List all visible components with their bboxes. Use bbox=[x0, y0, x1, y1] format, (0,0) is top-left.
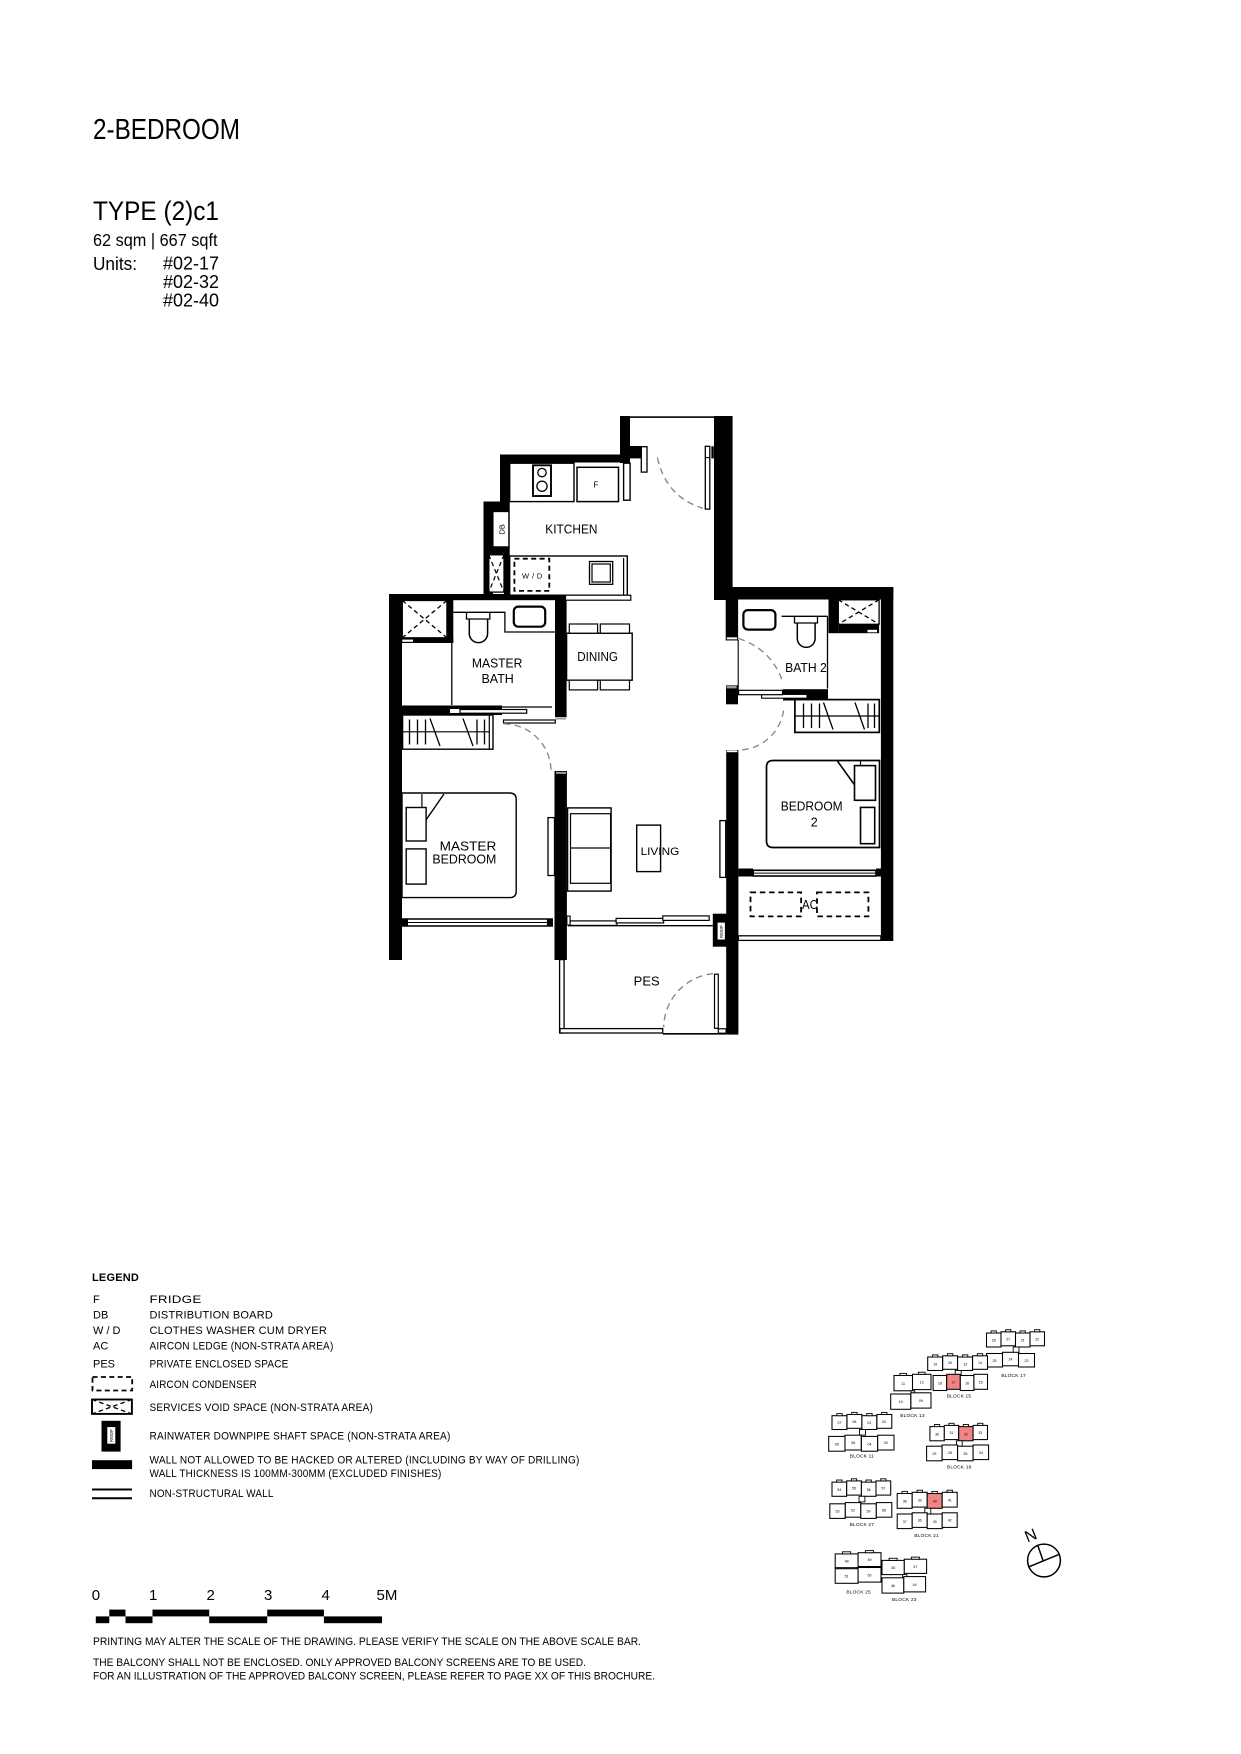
svg-text:1: 1 bbox=[149, 1587, 157, 1604]
svg-text:57: 57 bbox=[881, 1487, 885, 1491]
svg-text:22: 22 bbox=[1035, 1337, 1039, 1341]
svg-text:BLOCK 23: BLOCK 23 bbox=[892, 1597, 917, 1603]
svg-text:F: F bbox=[93, 1294, 100, 1306]
svg-text:17: 17 bbox=[952, 1380, 956, 1384]
svg-text:BEDROOM: BEDROOM bbox=[781, 800, 843, 814]
svg-text:0: 0 bbox=[92, 1587, 100, 1604]
svg-text:BATH 2: BATH 2 bbox=[785, 661, 827, 675]
svg-text:BLOCK 19: BLOCK 19 bbox=[947, 1464, 972, 1470]
svg-text:W / D: W / D bbox=[93, 1325, 121, 1337]
svg-text:RAINWATER DOWNPIPE SHAFT SPACE: RAINWATER DOWNPIPE SHAFT SPACE (NON-STRA… bbox=[150, 1431, 451, 1443]
svg-text:LIVING: LIVING bbox=[641, 846, 680, 858]
svg-text:41: 41 bbox=[948, 1498, 952, 1502]
svg-text:39: 39 bbox=[918, 1498, 922, 1502]
svg-text:08: 08 bbox=[852, 1420, 856, 1424]
svg-text:37: 37 bbox=[903, 1520, 907, 1524]
svg-text:4: 4 bbox=[322, 1587, 330, 1604]
svg-text:59: 59 bbox=[867, 1510, 871, 1514]
svg-text:PES: PES bbox=[93, 1359, 115, 1371]
svg-text:46: 46 bbox=[891, 1584, 895, 1588]
svg-text:53: 53 bbox=[836, 1510, 840, 1514]
svg-text:21: 21 bbox=[1021, 1339, 1025, 1343]
svg-text:43: 43 bbox=[933, 1520, 937, 1524]
svg-text:04: 04 bbox=[868, 1442, 872, 1446]
svg-text:29: 29 bbox=[932, 1452, 936, 1456]
svg-text:#02-32: #02-32 bbox=[163, 272, 219, 292]
svg-text:07: 07 bbox=[838, 1421, 842, 1425]
svg-text:AC: AC bbox=[802, 898, 818, 912]
svg-text:24: 24 bbox=[1009, 1358, 1013, 1362]
svg-text:AIRCON LEDGE (NON-STRATA AREA): AIRCON LEDGE (NON-STRATA AREA) bbox=[150, 1341, 334, 1353]
svg-text:LEGEND: LEGEND bbox=[92, 1272, 139, 1284]
svg-text:PRINTING MAY ALTER THE SCALE O: PRINTING MAY ALTER THE SCALE OF THE DRAW… bbox=[93, 1636, 641, 1648]
svg-text:2-BEDROOM: 2-BEDROOM bbox=[93, 114, 240, 146]
svg-text:56: 56 bbox=[867, 1488, 871, 1492]
svg-text:PES: PES bbox=[634, 975, 660, 989]
svg-text:48: 48 bbox=[845, 1559, 849, 1563]
svg-text:W / D: W / D bbox=[522, 572, 543, 581]
svg-text:42: 42 bbox=[948, 1519, 952, 1523]
svg-text:Units:: Units: bbox=[93, 254, 137, 274]
svg-text:BLOCK 11: BLOCK 11 bbox=[850, 1454, 874, 1460]
svg-text:CLOTHES WASHER CUM DRYER: CLOTHES WASHER CUM DRYER bbox=[150, 1325, 328, 1337]
svg-text:45: 45 bbox=[891, 1566, 895, 1570]
svg-text:BEDROOM: BEDROOM bbox=[432, 853, 496, 867]
svg-text:11: 11 bbox=[901, 1382, 905, 1386]
svg-text:FRIDGE: FRIDGE bbox=[150, 1294, 202, 1306]
svg-text:2: 2 bbox=[811, 816, 818, 830]
svg-text:TYPE (2)c1: TYPE (2)c1 bbox=[93, 196, 219, 226]
svg-text:36: 36 bbox=[918, 1519, 922, 1523]
svg-text:RWDP: RWDP bbox=[719, 925, 724, 938]
svg-text:10: 10 bbox=[899, 1400, 903, 1404]
svg-text:47: 47 bbox=[913, 1565, 917, 1569]
svg-text:62 sqm | 667 sqft: 62 sqm | 667 sqft bbox=[93, 230, 218, 250]
svg-text:44: 44 bbox=[913, 1583, 917, 1587]
svg-text:AC: AC bbox=[93, 1341, 108, 1353]
svg-text:15: 15 bbox=[979, 1380, 983, 1384]
svg-text:5M: 5M bbox=[377, 1587, 398, 1604]
svg-text:58: 58 bbox=[882, 1509, 886, 1513]
svg-text:13: 13 bbox=[963, 1362, 967, 1366]
svg-text:09: 09 bbox=[919, 1399, 923, 1403]
svg-text:DISTRIBUTION BOARD: DISTRIBUTION BOARD bbox=[150, 1310, 274, 1322]
svg-text:03: 03 bbox=[884, 1441, 888, 1445]
svg-text:WALL NOT ALLOWED TO BE HACKED: WALL NOT ALLOWED TO BE HACKED OR ALTERED… bbox=[150, 1455, 580, 1467]
svg-text:19: 19 bbox=[933, 1362, 937, 1366]
svg-text:28: 28 bbox=[948, 1451, 952, 1455]
svg-text:30: 30 bbox=[935, 1432, 939, 1436]
svg-text:23: 23 bbox=[1025, 1359, 1029, 1363]
svg-text:BLOCK 21: BLOCK 21 bbox=[914, 1533, 939, 1539]
svg-text:35: 35 bbox=[963, 1452, 967, 1456]
svg-text:16: 16 bbox=[965, 1382, 969, 1386]
svg-text:F: F bbox=[594, 481, 599, 490]
svg-text:32: 32 bbox=[964, 1432, 968, 1436]
svg-text:MASTER: MASTER bbox=[472, 657, 523, 671]
svg-text:55: 55 bbox=[852, 1487, 856, 1491]
svg-text:54: 54 bbox=[837, 1488, 841, 1492]
svg-text:BLOCK 25: BLOCK 25 bbox=[846, 1589, 871, 1595]
svg-text:DB: DB bbox=[497, 524, 506, 534]
svg-text:20: 20 bbox=[948, 1361, 952, 1365]
svg-text:05: 05 bbox=[835, 1442, 839, 1446]
svg-text:25: 25 bbox=[993, 1359, 997, 1363]
svg-text:PRIVATE ENCLOSED SPACE: PRIVATE ENCLOSED SPACE bbox=[150, 1359, 289, 1371]
svg-text:33: 33 bbox=[978, 1431, 982, 1435]
svg-text:18: 18 bbox=[938, 1382, 942, 1386]
svg-text:2: 2 bbox=[207, 1587, 215, 1604]
svg-text:FOR AN ILLUSTRATION OF THE APP: FOR AN ILLUSTRATION OF THE APPROVED BALC… bbox=[93, 1671, 655, 1683]
svg-text:#02-40: #02-40 bbox=[163, 291, 219, 311]
svg-text:AIRCON CONDENSER: AIRCON CONDENSER bbox=[150, 1379, 258, 1391]
svg-text:THE BALCONY SHALL NOT BE ENCLO: THE BALCONY SHALL NOT BE ENCLOSED. ONLY … bbox=[93, 1657, 586, 1669]
svg-text:BLOCK 27: BLOCK 27 bbox=[850, 1522, 875, 1528]
svg-text:MASTER: MASTER bbox=[440, 840, 497, 854]
svg-text:NON-STRUCTURAL WALL: NON-STRUCTURAL WALL bbox=[150, 1488, 274, 1500]
svg-text:DB: DB bbox=[93, 1310, 108, 1322]
svg-text:14: 14 bbox=[978, 1361, 982, 1365]
svg-text:40: 40 bbox=[933, 1500, 937, 1504]
svg-text:BATH: BATH bbox=[482, 672, 514, 686]
svg-text:12: 12 bbox=[920, 1381, 924, 1385]
svg-text:RWDP: RWDP bbox=[109, 1429, 114, 1442]
svg-text:3: 3 bbox=[264, 1587, 272, 1604]
svg-text:SERVICES VOID SPACE (NON-STRAT: SERVICES VOID SPACE (NON-STRATA AREA) bbox=[150, 1402, 374, 1414]
svg-text:#02-17: #02-17 bbox=[163, 254, 219, 274]
svg-text:02: 02 bbox=[882, 1420, 886, 1424]
svg-text:DINING: DINING bbox=[577, 650, 618, 664]
svg-text:KITCHEN: KITCHEN bbox=[545, 522, 597, 536]
svg-text:01: 01 bbox=[867, 1421, 871, 1425]
svg-text:31: 31 bbox=[950, 1431, 954, 1435]
svg-text:BLOCK 15: BLOCK 15 bbox=[947, 1394, 972, 1400]
svg-text:34: 34 bbox=[979, 1451, 983, 1455]
svg-text:BLOCK 17: BLOCK 17 bbox=[1001, 1373, 1026, 1379]
svg-text:51: 51 bbox=[845, 1575, 849, 1579]
svg-text:49: 49 bbox=[868, 1558, 872, 1562]
svg-text:27: 27 bbox=[1006, 1337, 1010, 1341]
svg-text:26: 26 bbox=[992, 1339, 996, 1343]
svg-text:BLOCK 13: BLOCK 13 bbox=[900, 1413, 925, 1419]
svg-text:WALL THICKNESS IS 100MM-300MM: WALL THICKNESS IS 100MM-300MM (EXCLUDED … bbox=[150, 1468, 442, 1480]
svg-text:38: 38 bbox=[903, 1500, 907, 1504]
svg-text:52: 52 bbox=[851, 1509, 855, 1513]
svg-text:06: 06 bbox=[851, 1441, 855, 1445]
svg-text:50: 50 bbox=[868, 1573, 872, 1577]
